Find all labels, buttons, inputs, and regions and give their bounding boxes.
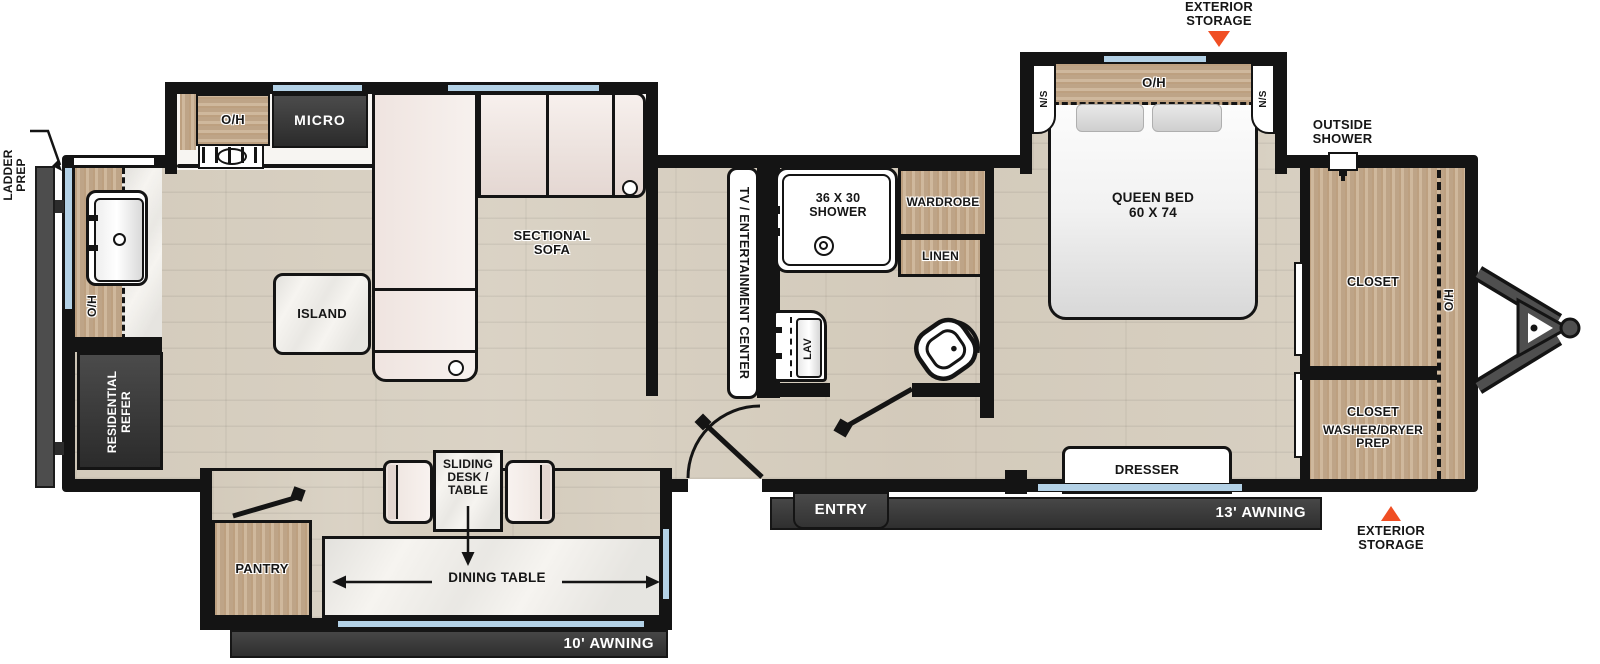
- micro-label: MICRO: [274, 96, 366, 146]
- tv-center-label: TV / ENTERTAINMENT CENTER: [730, 170, 756, 396]
- desk-chair-left: [383, 460, 433, 524]
- bath-wall-left: [757, 383, 830, 397]
- island: ISLAND: [273, 273, 371, 355]
- lav-divider: [790, 317, 792, 377]
- exterior-storage-top-label: EXTERIOR STORAGE: [1174, 0, 1264, 29]
- wardrobe-label: WARDROBE: [901, 171, 985, 234]
- bedroom-wall-stub: [1005, 470, 1027, 494]
- pantry-label: PANTRY: [215, 523, 309, 615]
- ladder-prep-arrow: [30, 131, 62, 171]
- dinette-side-window: [662, 528, 670, 600]
- sofa-seam: [478, 95, 481, 195]
- queen-bed-label: QUEEN BED 60 X 74: [1076, 191, 1230, 221]
- awning-10-label: 10' AWNING: [563, 636, 654, 653]
- rear-sink-drain: [113, 233, 126, 246]
- ladder-prep-label: LADDER PREP: [0, 130, 30, 220]
- closet-slide-door: [1294, 372, 1304, 458]
- cooktop-icon: [198, 144, 264, 169]
- cooktop-burner: [217, 148, 247, 165]
- sofa-seam: [546, 95, 549, 195]
- island-label: ISLAND: [276, 276, 368, 352]
- bed-pillow: [1076, 104, 1144, 132]
- faucet-handle-icon: [87, 215, 98, 221]
- ladder-mount-bottom: [55, 442, 64, 455]
- linen-cabinet: LINEN: [898, 237, 983, 277]
- closet-slide-door: [1294, 262, 1304, 356]
- chair-armrest: [388, 465, 398, 519]
- kitchen-window-1: [272, 84, 363, 92]
- closet-top-label: CLOSET: [1318, 276, 1428, 290]
- front-oh-label: O/H: [1440, 270, 1460, 330]
- pantry: PANTRY: [212, 520, 312, 618]
- bath-wall-right: [912, 383, 992, 397]
- exterior-storage-front-arrow: [1381, 506, 1401, 521]
- kitchen-window-2: [447, 84, 600, 92]
- closet-bottom-label: CLOSET WASHER/DRYER PREP: [1306, 406, 1440, 450]
- ns-right-label: N/S: [1256, 79, 1270, 119]
- lav-handle-icon: [773, 327, 782, 333]
- kitchen-cabinet-strip: [180, 94, 196, 150]
- outside-shower-label: OUTSIDE SHOWER: [1300, 118, 1385, 147]
- bedroom-bottom-window: [1037, 483, 1243, 492]
- kitchen-oh-label: O/H: [198, 96, 268, 144]
- shower-drain-inner: [819, 241, 828, 250]
- rear-window: [64, 167, 73, 310]
- residential-refer: RESIDENTIAL REFER: [77, 352, 163, 470]
- exterior-storage-top-arrow: [1208, 31, 1230, 47]
- entry-tab: ENTRY: [793, 492, 889, 529]
- bedroom-window: [1103, 55, 1207, 63]
- sofa-seam: [375, 288, 475, 291]
- entry-label: ENTRY: [795, 494, 887, 527]
- ladder-mount-top: [55, 200, 64, 213]
- refer-label: RESIDENTIAL REFER: [107, 357, 133, 467]
- lav-handle-icon: [773, 353, 782, 359]
- sofa-seam: [612, 95, 615, 195]
- rear-top-wall-gap: [74, 158, 154, 165]
- shower: 36 X 30 SHOWER: [775, 167, 898, 273]
- closet-divider-wall: [1300, 366, 1437, 380]
- sofa-chaise-section: [372, 92, 478, 382]
- nightstand-left: N/S: [1032, 64, 1056, 134]
- sofa-seam: [375, 350, 475, 353]
- entry-door-gap: [688, 479, 762, 492]
- outside-shower-stem: [1341, 176, 1345, 181]
- shower-valve-icon: [770, 228, 780, 236]
- bedroom-oh-cabinet: O/H: [1044, 64, 1264, 105]
- exterior-storage-front-label: EXTERIOR STORAGE: [1346, 524, 1436, 553]
- awning-10: 10' AWNING: [230, 630, 668, 658]
- shower-label: 36 X 30 SHOWER: [788, 192, 888, 220]
- shower-drain-icon: [814, 236, 834, 256]
- refer-wall-stub: [67, 337, 162, 352]
- awning-13-label: 13' AWNING: [1215, 505, 1306, 522]
- kitchen-oh-cabinet: O/H: [196, 94, 270, 146]
- sliding-desk-label: SLIDING DESK / TABLE: [436, 458, 500, 498]
- ns-left-label: N/S: [1037, 79, 1051, 119]
- ladder: [35, 166, 55, 488]
- sliding-desk-table: SLIDING DESK / TABLE: [433, 450, 503, 532]
- dinette-bottom-window: [337, 620, 645, 628]
- sofa-label: SECTIONAL SOFA: [492, 229, 612, 258]
- sofa-cupholder-icon: [448, 360, 464, 376]
- linen-label: LINEN: [901, 240, 980, 274]
- bedroom-oh-label: O/H: [1044, 64, 1264, 102]
- shower-inner-rim: [782, 174, 891, 266]
- slide-wall-right: [646, 168, 658, 396]
- chair-armrest: [540, 465, 550, 519]
- nightstand-right: N/S: [1251, 64, 1275, 134]
- desk-chair-right: [505, 460, 555, 524]
- shower-valve-icon: [770, 206, 780, 214]
- microwave: MICRO: [272, 94, 368, 148]
- wardrobe: WARDROBE: [898, 168, 988, 237]
- outside-shower-fixture: [1328, 152, 1358, 171]
- rv-floorplan: LADDER PREP O/H RESIDENTIAL REFER O/H MI…: [0, 0, 1600, 664]
- rear-sink: [86, 190, 148, 286]
- dining-table-label: DINING TABLE: [432, 571, 562, 586]
- lav-label: LAV: [800, 329, 816, 369]
- rear-oh-label: O/H: [82, 281, 104, 331]
- hitch: [1478, 273, 1579, 387]
- sofa-cupholder-icon: [622, 180, 638, 196]
- faucet-handle-icon: [87, 245, 98, 251]
- bed-pillow: [1152, 104, 1222, 132]
- lavatory: LAV: [773, 310, 827, 382]
